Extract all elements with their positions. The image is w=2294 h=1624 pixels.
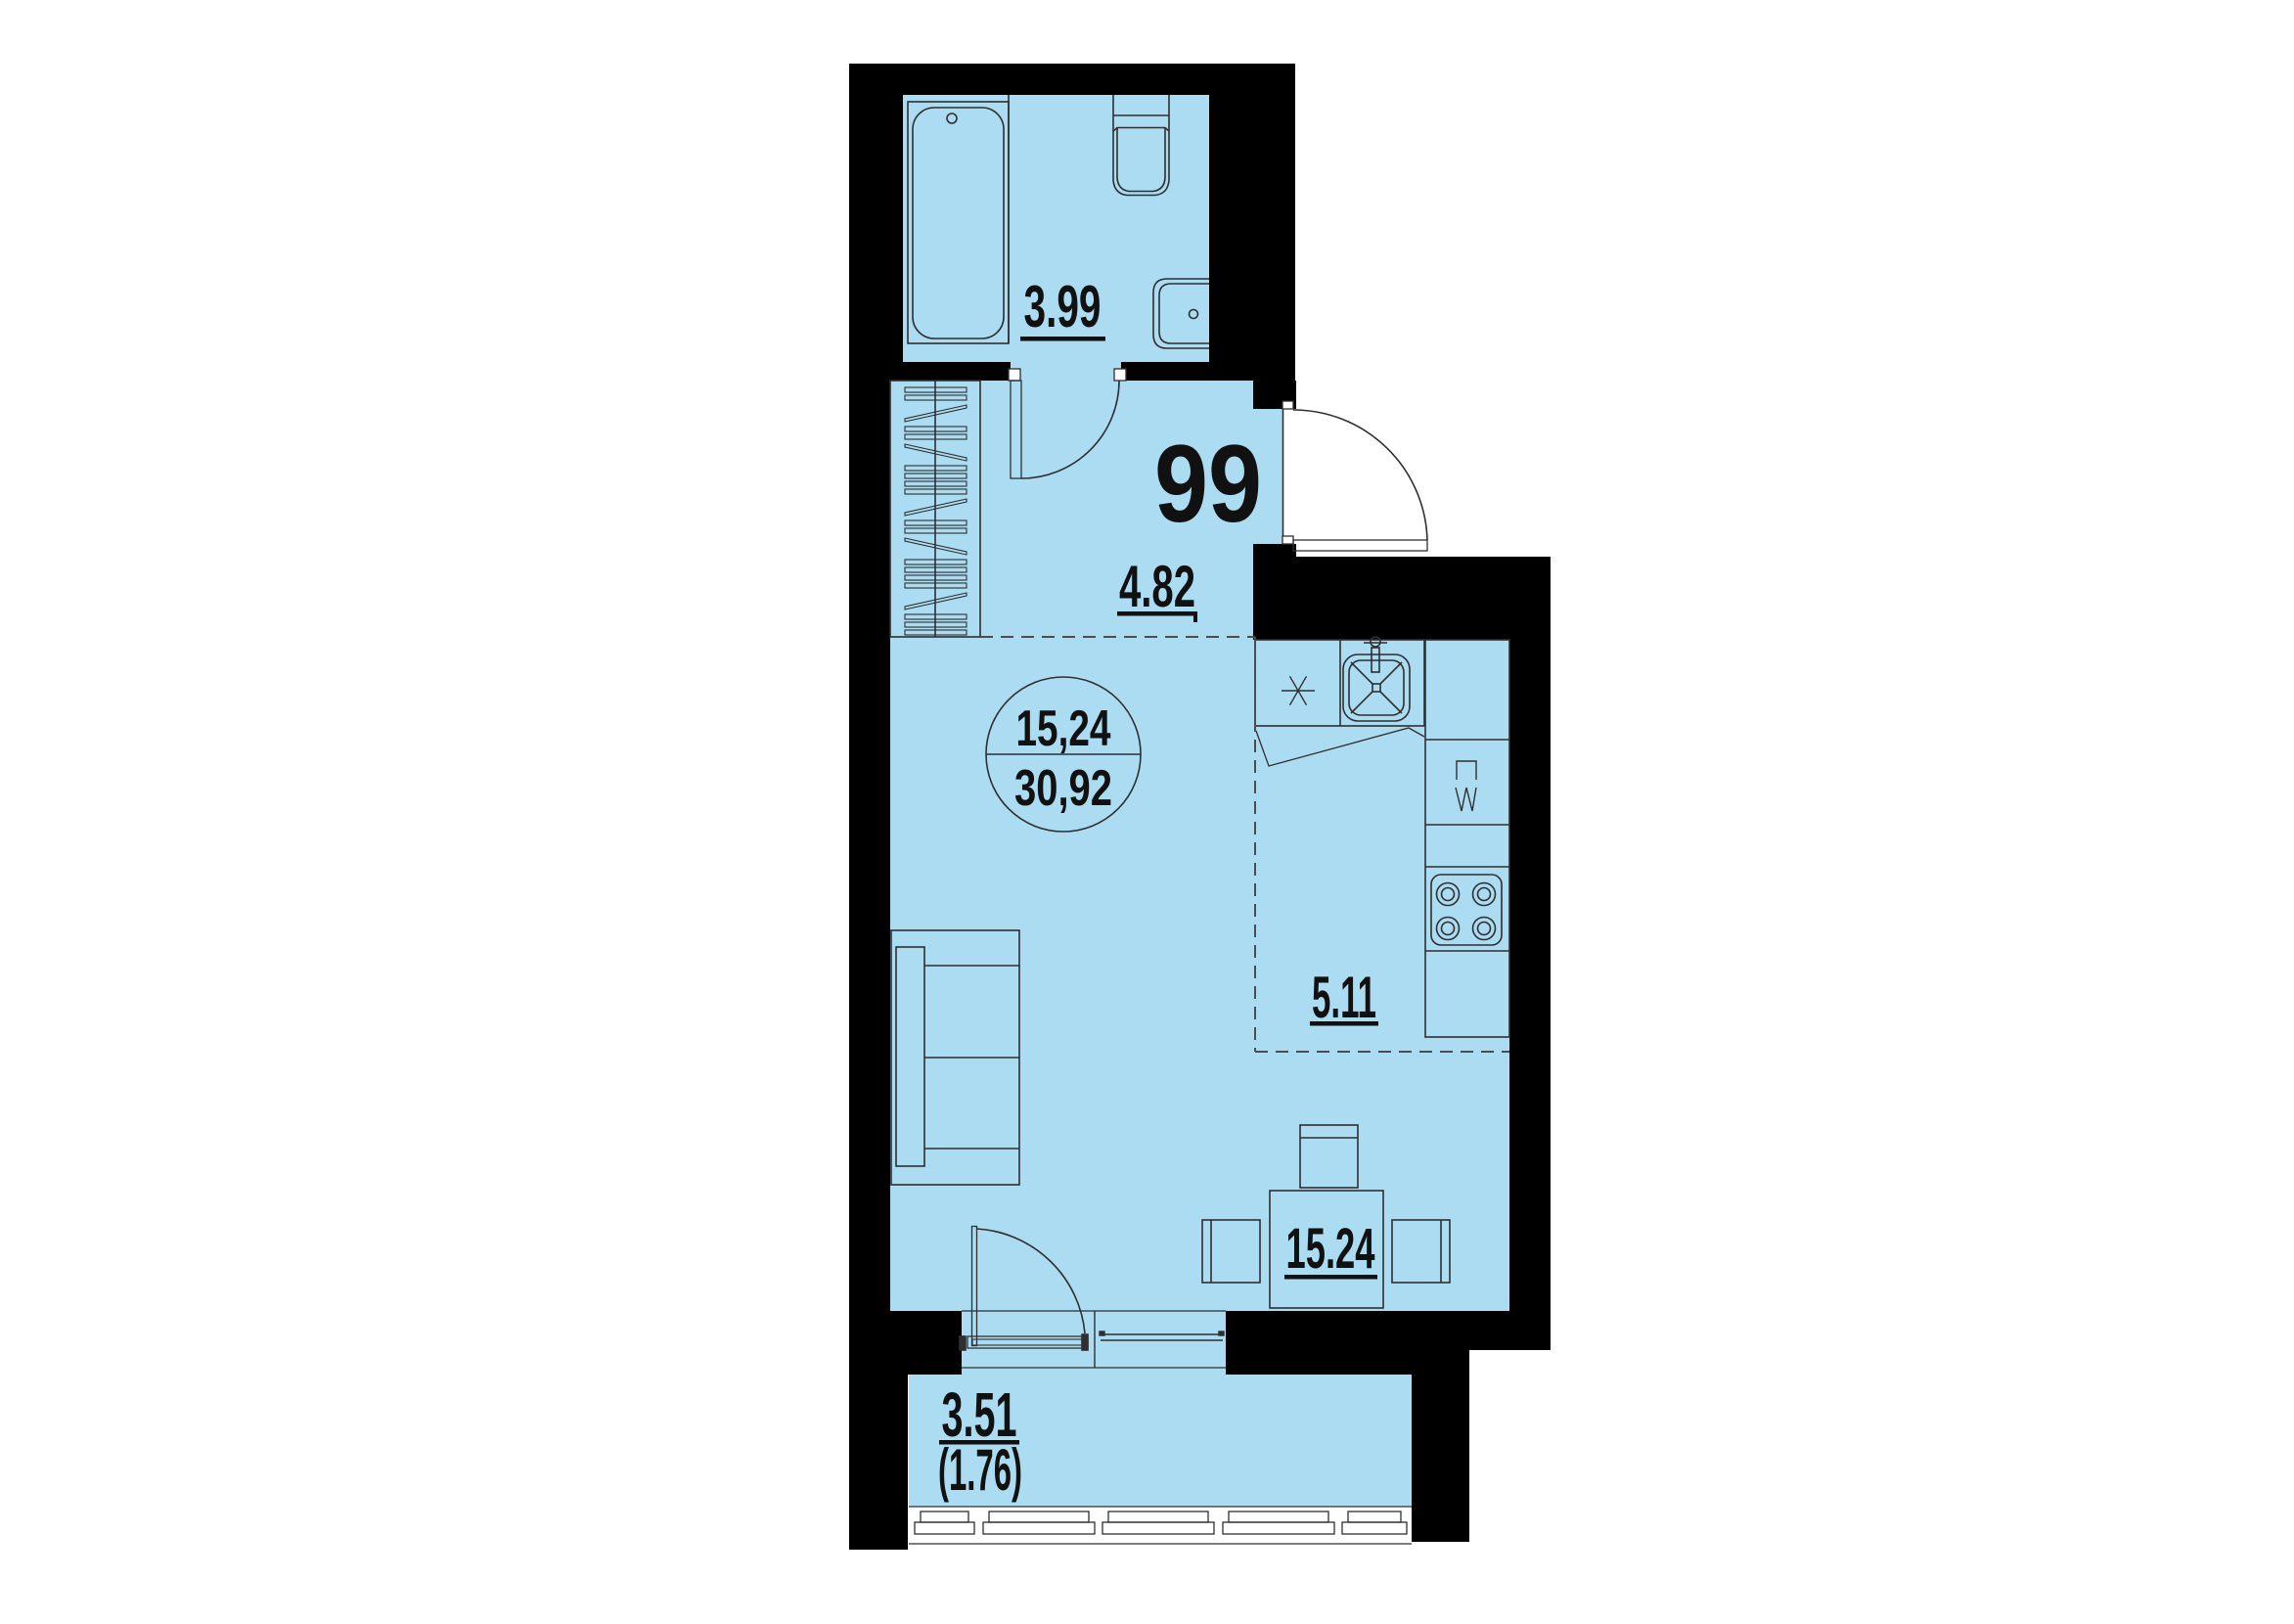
svg-text:30,92: 30,92 (1014, 760, 1112, 817)
svg-text:99: 99 (1154, 423, 1262, 545)
svg-text:15.24: 15.24 (1286, 1217, 1375, 1281)
svg-text:(1.76): (1.76) (938, 1437, 1022, 1503)
svg-text:4.82: 4.82 (1119, 554, 1195, 619)
svg-text:3.99: 3.99 (1024, 274, 1102, 339)
svg-text:15,24: 15,24 (1016, 700, 1111, 757)
svg-text:5.11: 5.11 (1312, 965, 1376, 1030)
